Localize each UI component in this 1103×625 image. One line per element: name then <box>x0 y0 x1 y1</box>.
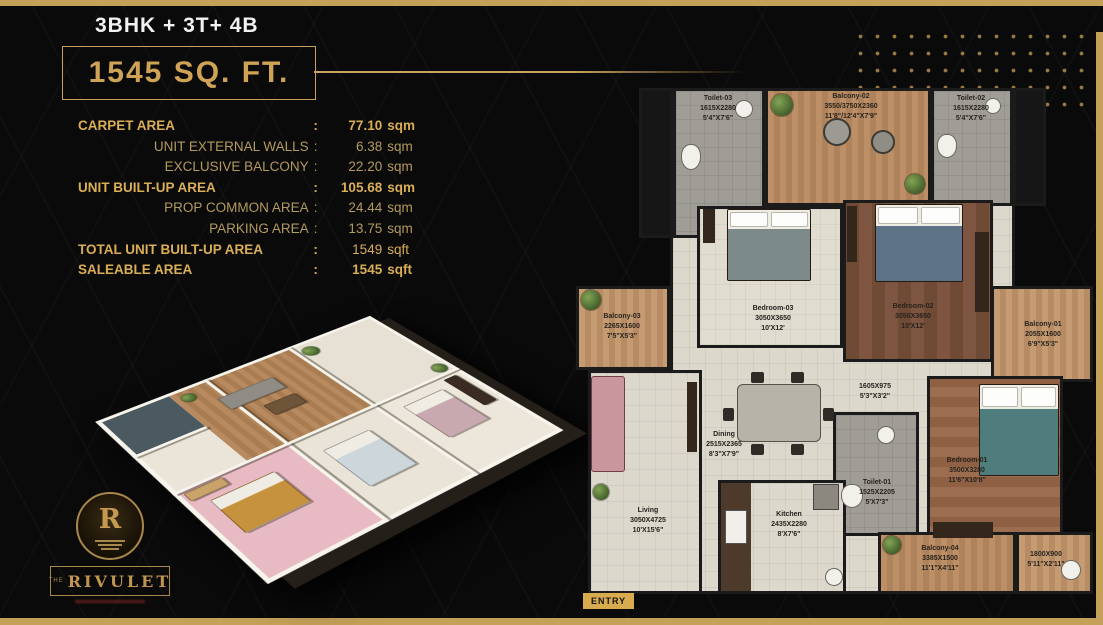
room-label-bedroom-02: Bedroom-023050X365010'X12' <box>893 302 934 331</box>
plant <box>593 484 609 500</box>
chair <box>791 372 804 383</box>
plant <box>883 536 901 554</box>
washbasin <box>825 568 843 586</box>
table-row: UNIT EXTERNAL WALLS:6.38sqm <box>78 139 423 160</box>
logo-water-line <box>95 540 125 542</box>
room-label-dining: Dining2515X23658'3"X7'9" <box>706 430 742 459</box>
brand-logo: R THE RIVULET <box>40 492 180 603</box>
room-label-living: Living3050X472510'X15'6" <box>630 506 666 535</box>
fridge <box>813 484 839 510</box>
washbasin <box>877 426 895 444</box>
logo-monogram: R <box>78 504 142 535</box>
table-row: EXCLUSIVE BALCONY:22.20sqm <box>78 159 423 180</box>
side-table <box>703 209 715 243</box>
room-label-utility: 1800X9005'11"X2'11" <box>1027 550 1064 570</box>
logo-water-line <box>101 548 119 550</box>
tv-unit <box>687 382 697 452</box>
brochure-canvas: 3BHK + 3T+ 4B 1545 SQ. FT. CARPET AREA:7… <box>0 0 1103 625</box>
room-label-balcony-03: Balcony-032265X16007'5"X5'3" <box>603 312 640 341</box>
room-label-bedroom-03: Bedroom-033050X365010'X12' <box>753 304 794 333</box>
dining-table <box>737 384 821 442</box>
logo-emblem-icon: R <box>76 492 144 560</box>
area-statement-table: CARPET AREA:77.10sqm UNIT EXTERNAL WALLS… <box>78 118 423 283</box>
plant <box>581 290 601 310</box>
dresser <box>847 206 857 262</box>
chair <box>723 408 734 421</box>
logo-wordmark: THE RIVULET <box>50 566 170 596</box>
room-label-kitchen: Kitchen2435X22808'X7'6" <box>771 510 807 539</box>
chair <box>823 408 834 421</box>
floor-plan-2d: Toilet-031615X22805'4"X7'6" Balcony-0235… <box>575 82 1095 594</box>
entry-label: ENTRY <box>583 593 634 609</box>
patio-table <box>871 130 895 154</box>
table-row: CARPET AREA:77.10sqm <box>78 118 423 139</box>
area-badge-text: 1545 SQ. FT. <box>89 56 290 90</box>
logo-water-line <box>98 544 122 546</box>
washbasin <box>735 100 753 118</box>
plant <box>905 174 925 194</box>
room-label-passage: 1605X9755'3"X3'2" <box>859 382 891 402</box>
service-shaft <box>639 88 673 238</box>
bed <box>727 209 811 281</box>
logo-tagline <box>75 600 145 603</box>
room-label-balcony-04: Balcony-043385X150011'1"X4'11" <box>921 544 958 573</box>
sofa <box>591 376 625 472</box>
plant <box>771 94 793 116</box>
chair <box>751 444 764 455</box>
wc <box>681 144 701 170</box>
wardrobe <box>975 232 989 312</box>
room-label-toilet-03: Toilet-031615X22805'4"X7'6" <box>700 94 736 123</box>
wardrobe <box>933 522 993 538</box>
chair <box>751 372 764 383</box>
room-label-toilet-02: Toilet-021615X22805'4"X7'6" <box>953 94 989 123</box>
stove <box>725 510 747 544</box>
patio-table <box>823 118 851 146</box>
wc <box>937 134 957 158</box>
bed <box>979 384 1059 476</box>
right-gold-bar <box>1096 32 1103 625</box>
table-row: PROP COMMON AREA:24.44sqm <box>78 200 423 221</box>
chair <box>791 444 804 455</box>
service-shaft <box>1013 88 1046 206</box>
room-label-bedroom-01: Bedroom-013500X328011'6"X10'8" <box>947 456 988 485</box>
unit-type-title: 3BHK + 3T+ 4B <box>95 14 259 38</box>
room-label-toilet-01: Toilet-011525X22055'X7'3" <box>859 478 895 507</box>
room-label-balcony-01: Balcony-012055X16006'9"X5'3" <box>1024 320 1061 349</box>
table-row: PARKING AREA:13.75sqm <box>78 221 423 242</box>
bed <box>875 204 963 282</box>
top-gold-bar <box>0 0 1103 6</box>
table-row: TOTAL UNIT BUILT-UP AREA:1549sqft <box>78 242 423 263</box>
area-badge: 1545 SQ. FT. <box>62 46 316 100</box>
room-label-balcony-02: Balcony-023550/3750X236011'8"/12'4"X7'9" <box>824 92 877 121</box>
bottom-gold-bar <box>0 618 1103 625</box>
gold-connector-line <box>314 71 746 73</box>
table-row: UNIT BUILT-UP AREA:105.68sqm <box>78 180 423 201</box>
